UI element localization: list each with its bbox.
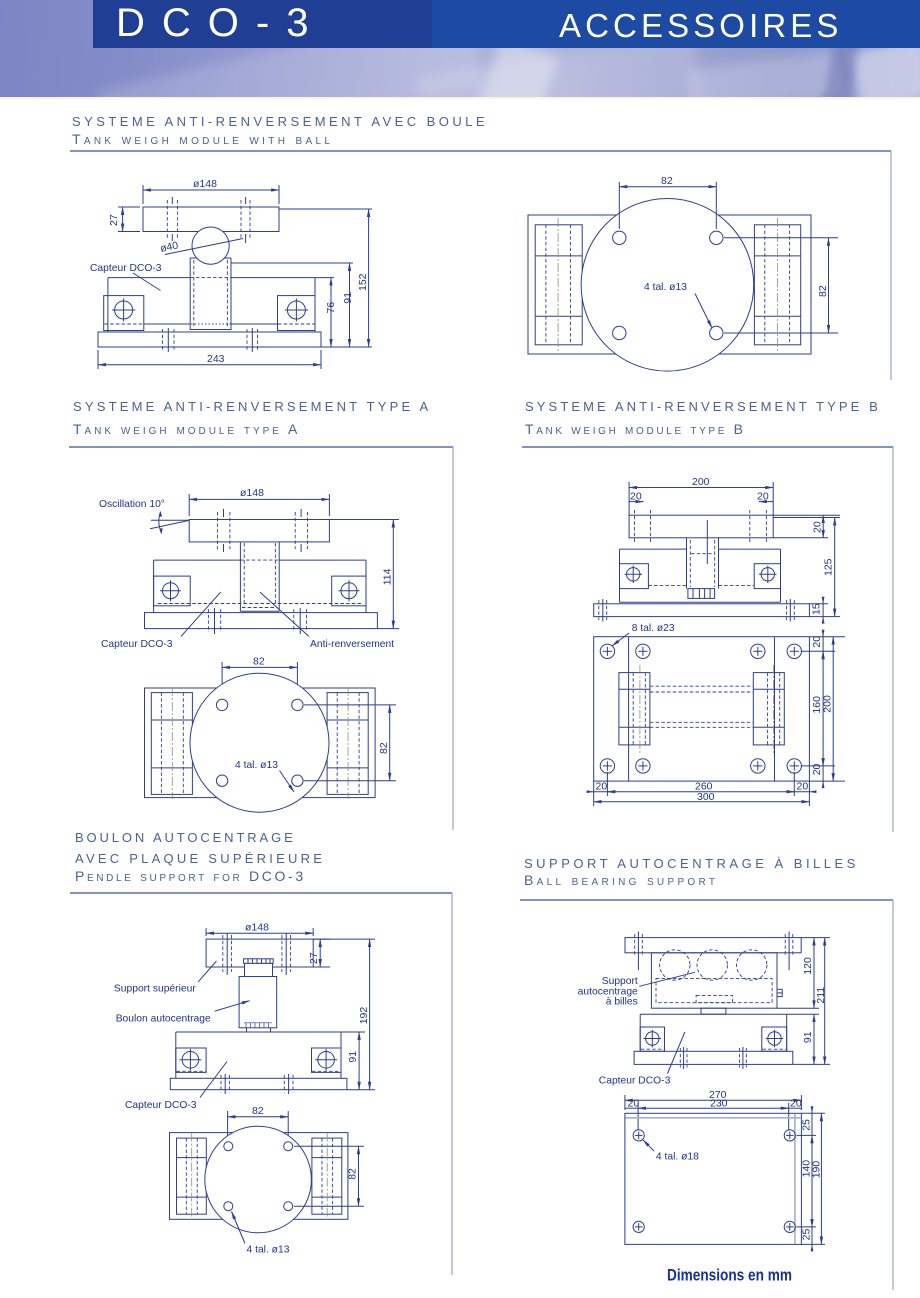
- svg-text:à billes: à billes: [606, 996, 638, 1007]
- svg-text:27: 27: [108, 214, 120, 226]
- svg-text:300: 300: [697, 791, 715, 803]
- svg-text:Support: Support: [602, 976, 638, 987]
- svg-text:4 tal. ø18: 4 tal. ø18: [656, 1152, 699, 1163]
- svg-text:200: 200: [692, 476, 710, 488]
- svg-text:4 tal. ø13: 4 tal. ø13: [644, 282, 687, 293]
- svg-text:230: 230: [710, 1098, 728, 1110]
- svg-text:91: 91: [347, 1051, 359, 1063]
- svg-text:120: 120: [802, 957, 814, 975]
- svg-text:82: 82: [378, 742, 390, 754]
- svg-text:20: 20: [628, 1098, 640, 1110]
- svg-text:152: 152: [357, 273, 369, 291]
- svg-text:20: 20: [812, 521, 824, 533]
- svg-text:Boulon autocentrage: Boulon autocentrage: [116, 1014, 211, 1025]
- svg-text:211: 211: [815, 987, 827, 1004]
- svg-text:ø148: ø148: [193, 178, 217, 190]
- svg-text:91: 91: [802, 1031, 814, 1043]
- svg-text:192: 192: [358, 1007, 370, 1025]
- svg-text:91: 91: [342, 292, 354, 304]
- svg-text:76: 76: [325, 302, 337, 314]
- svg-text:190: 190: [811, 1161, 823, 1179]
- svg-text:4 tal. ø13: 4 tal. ø13: [235, 760, 278, 771]
- svg-text:8 tal. ø23: 8 tal. ø23: [632, 623, 675, 634]
- svg-text:114: 114: [382, 568, 394, 585]
- svg-text:20: 20: [630, 491, 642, 503]
- svg-text:125: 125: [823, 558, 835, 576]
- svg-text:Capteur DCO-3: Capteur DCO-3: [90, 263, 162, 274]
- svg-text:20: 20: [596, 781, 608, 793]
- svg-text:Capteur DCO-3: Capteur DCO-3: [599, 1075, 671, 1086]
- svg-text:25: 25: [801, 1119, 813, 1131]
- svg-text:82: 82: [661, 175, 673, 187]
- svg-text:Oscillation 10°: Oscillation 10°: [99, 499, 165, 510]
- svg-text:25: 25: [801, 1229, 813, 1241]
- svg-text:Capteur DCO-3: Capteur DCO-3: [125, 1100, 197, 1111]
- svg-text:20: 20: [811, 763, 823, 775]
- svg-text:20: 20: [811, 636, 823, 648]
- svg-text:Capteur DCO-3: Capteur DCO-3: [101, 639, 173, 650]
- svg-text:Support supérieur: Support supérieur: [114, 984, 196, 995]
- svg-text:20: 20: [790, 1098, 802, 1110]
- svg-text:82: 82: [252, 1105, 264, 1117]
- svg-text:20: 20: [797, 781, 809, 793]
- svg-text:82: 82: [347, 1168, 359, 1180]
- svg-text:200: 200: [822, 695, 834, 713]
- svg-text:15: 15: [811, 603, 823, 615]
- svg-text:82: 82: [817, 285, 829, 297]
- svg-text:27: 27: [308, 952, 320, 964]
- svg-text:Dimensions en mm: Dimensions en mm: [667, 1267, 792, 1285]
- svg-text:ø148: ø148: [245, 922, 269, 934]
- svg-text:Anti-renversement: Anti-renversement: [310, 639, 394, 650]
- svg-text:ø148: ø148: [240, 487, 264, 499]
- svg-text:20: 20: [757, 491, 769, 503]
- svg-text:243: 243: [207, 353, 225, 365]
- svg-text:82: 82: [253, 656, 265, 668]
- svg-text:4 tal. ø13: 4 tal. ø13: [247, 1245, 290, 1256]
